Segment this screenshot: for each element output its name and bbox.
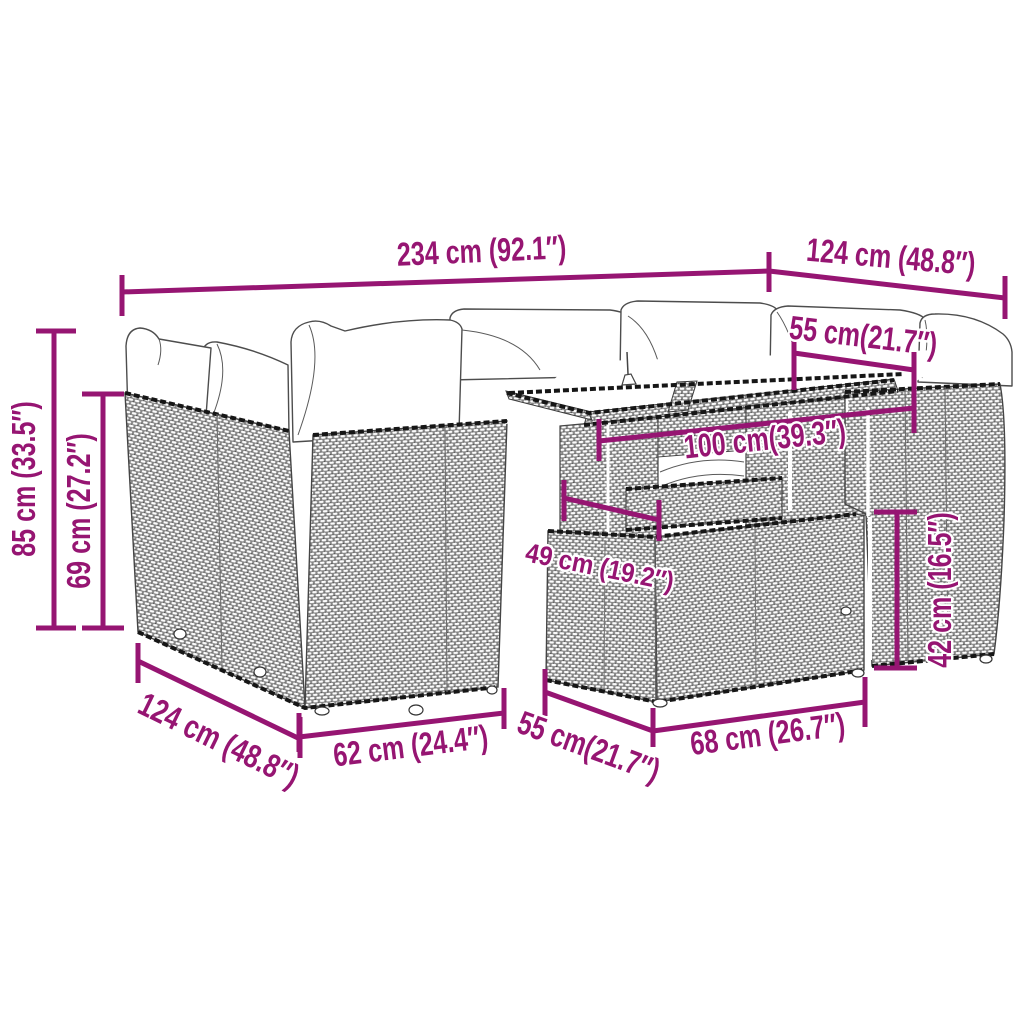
svg-text:69 cm (27.2″): 69 cm (27.2″) bbox=[61, 433, 98, 589]
svg-text:85 cm (33.5″): 85 cm (33.5″) bbox=[6, 401, 43, 557]
svg-text:234 cm (92.1″): 234 cm (92.1″) bbox=[396, 229, 567, 274]
svg-text:42 cm (16.5″): 42 cm (16.5″) bbox=[922, 512, 959, 668]
